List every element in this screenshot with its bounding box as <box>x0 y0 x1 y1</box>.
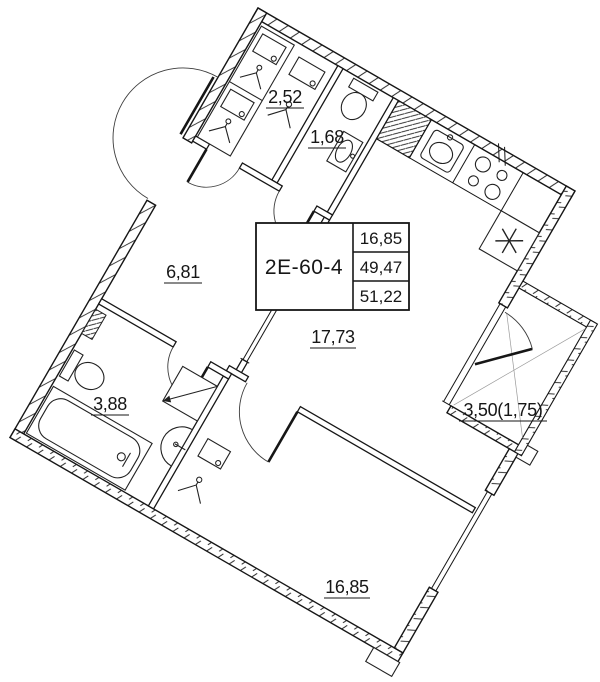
svg-text:3,88: 3,88 <box>93 394 127 414</box>
living-area-value: 16,85 <box>360 229 403 248</box>
balcony-door-arc <box>496 312 541 349</box>
svg-text:16,85: 16,85 <box>325 577 369 597</box>
label-bathroom: 3,88 <box>91 394 129 415</box>
balcony-door-leaf <box>475 328 532 385</box>
svg-text:6,81: 6,81 <box>166 262 200 282</box>
svg-text:2,52: 2,52 <box>268 87 302 107</box>
closet-door-icon <box>188 149 240 201</box>
shelf-box-icon <box>198 439 231 469</box>
wall-bedroom-right-lower <box>394 587 438 653</box>
info-box: 2E-60-4 16,85 49,47 51,22 <box>256 223 409 310</box>
label-kitchen-living: 17,73 <box>310 327 356 348</box>
shelf-box-icon <box>289 57 325 89</box>
balcony-parapet-top <box>519 281 596 330</box>
wall-bedroom-top-b <box>297 407 475 513</box>
balcony-parapet-right <box>515 320 598 456</box>
label-wc: 1,68 <box>308 127 346 148</box>
floor-plan-page: 2E-60-4 16,85 49,47 51,22 2,52 1,68 6,81… <box>0 0 600 682</box>
balcony-parapets <box>447 281 597 456</box>
label-balcony: 3,50(1,75) <box>459 400 547 421</box>
apartment-area-value: 49,47 <box>360 258 403 277</box>
svg-text:1,68: 1,68 <box>310 127 344 147</box>
label-hallway: 6,81 <box>164 262 202 283</box>
hanger-icon <box>178 471 212 504</box>
unit-code: 2E-60-4 <box>265 256 343 279</box>
label-bedroom: 16,85 <box>324 577 370 598</box>
floor-plan-svg: 2E-60-4 16,85 49,47 51,22 2,52 1,68 6,81… <box>0 0 600 682</box>
wall-bottom <box>10 429 403 662</box>
total-area-value: 51,22 <box>360 287 403 306</box>
label-closet: 2,52 <box>266 87 304 108</box>
wall-bedroom-right-upper <box>485 445 520 495</box>
bedroom-door-icon <box>218 383 297 462</box>
svg-text:17,73: 17,73 <box>311 327 355 347</box>
svg-text:3,50(1,75): 3,50(1,75) <box>463 400 542 420</box>
wall-bath-top-a <box>99 299 176 347</box>
